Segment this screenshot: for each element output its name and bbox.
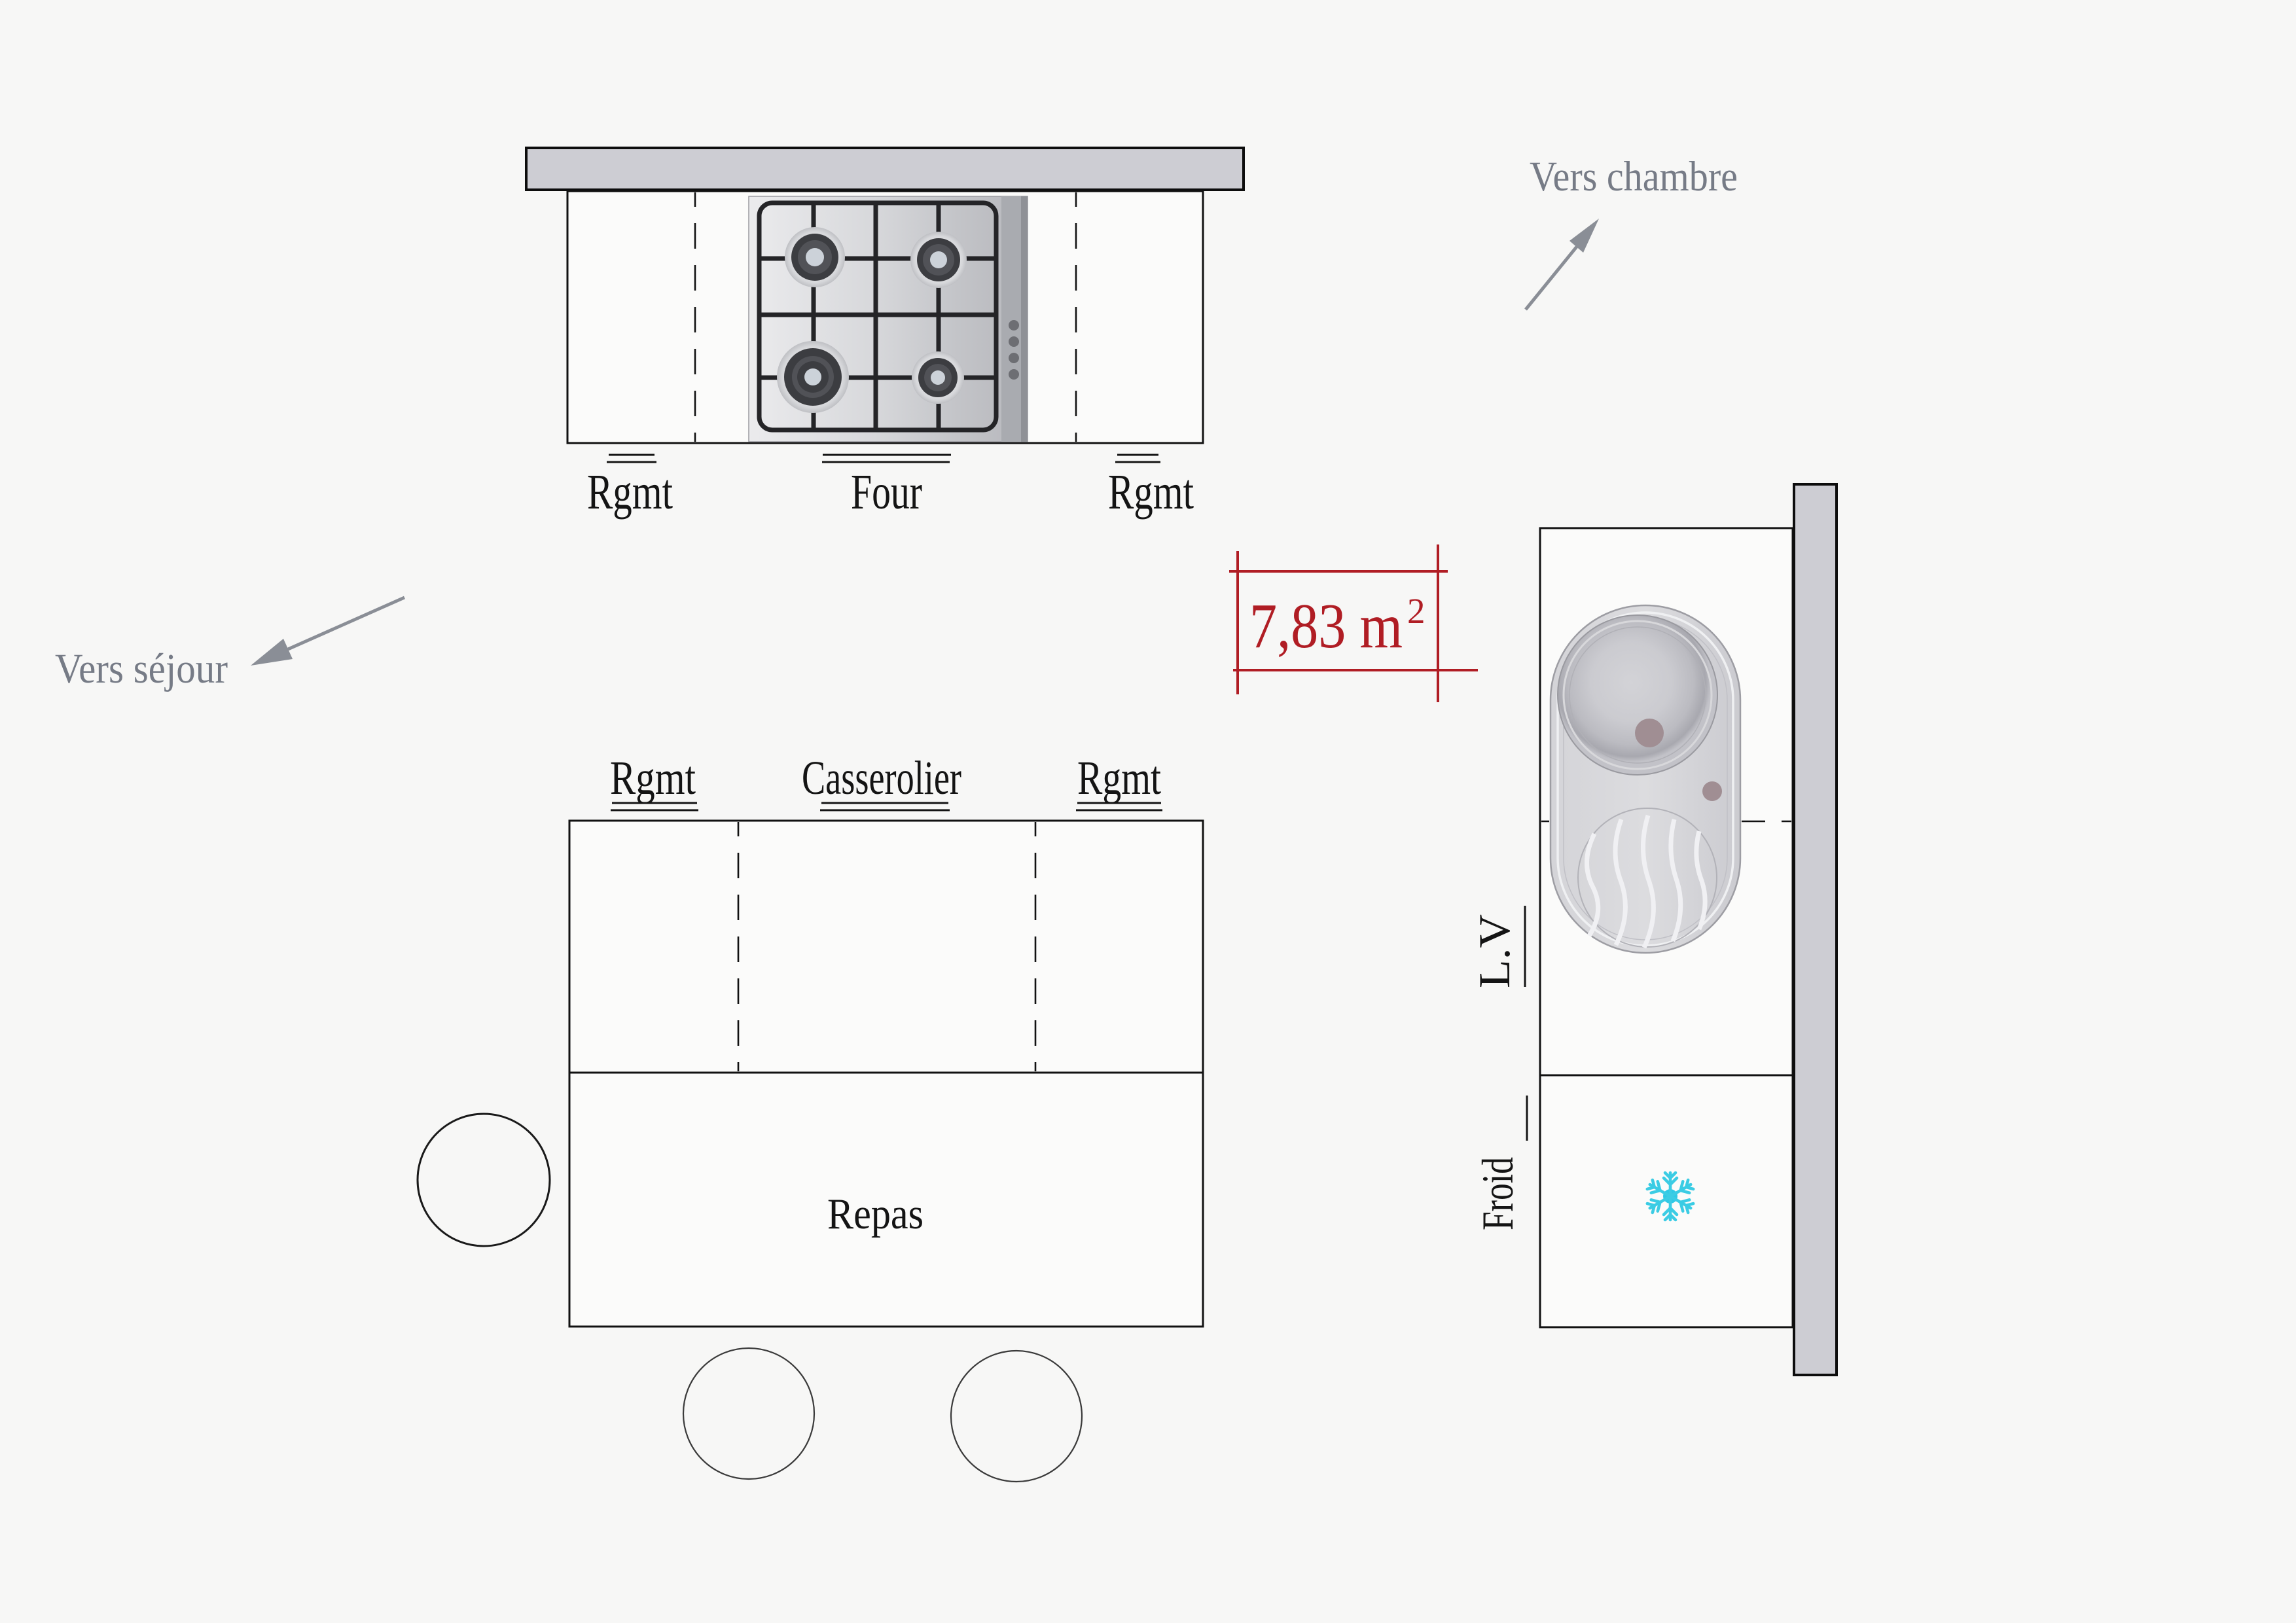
svg-text:Rgmt: Rgmt <box>1077 751 1161 804</box>
svg-text:2: 2 <box>1407 591 1426 631</box>
svg-text:Repas: Repas <box>827 1190 924 1238</box>
svg-text:Rgmt: Rgmt <box>610 751 696 804</box>
svg-text:Froid: Froid <box>1473 1157 1522 1230</box>
svg-text:Rgmt: Rgmt <box>1108 465 1194 520</box>
svg-text:7,83 m: 7,83 m <box>1249 591 1403 661</box>
svg-text:Casserolier: Casserolier <box>802 751 961 804</box>
svg-text:Rgmt: Rgmt <box>587 465 673 520</box>
svg-text:L.V: L.V <box>1469 914 1519 988</box>
svg-text:Four: Four <box>851 465 922 520</box>
svg-text:Vers séjour: Vers séjour <box>55 645 228 692</box>
svg-text:Vers chambre: Vers chambre <box>1530 153 1738 200</box>
